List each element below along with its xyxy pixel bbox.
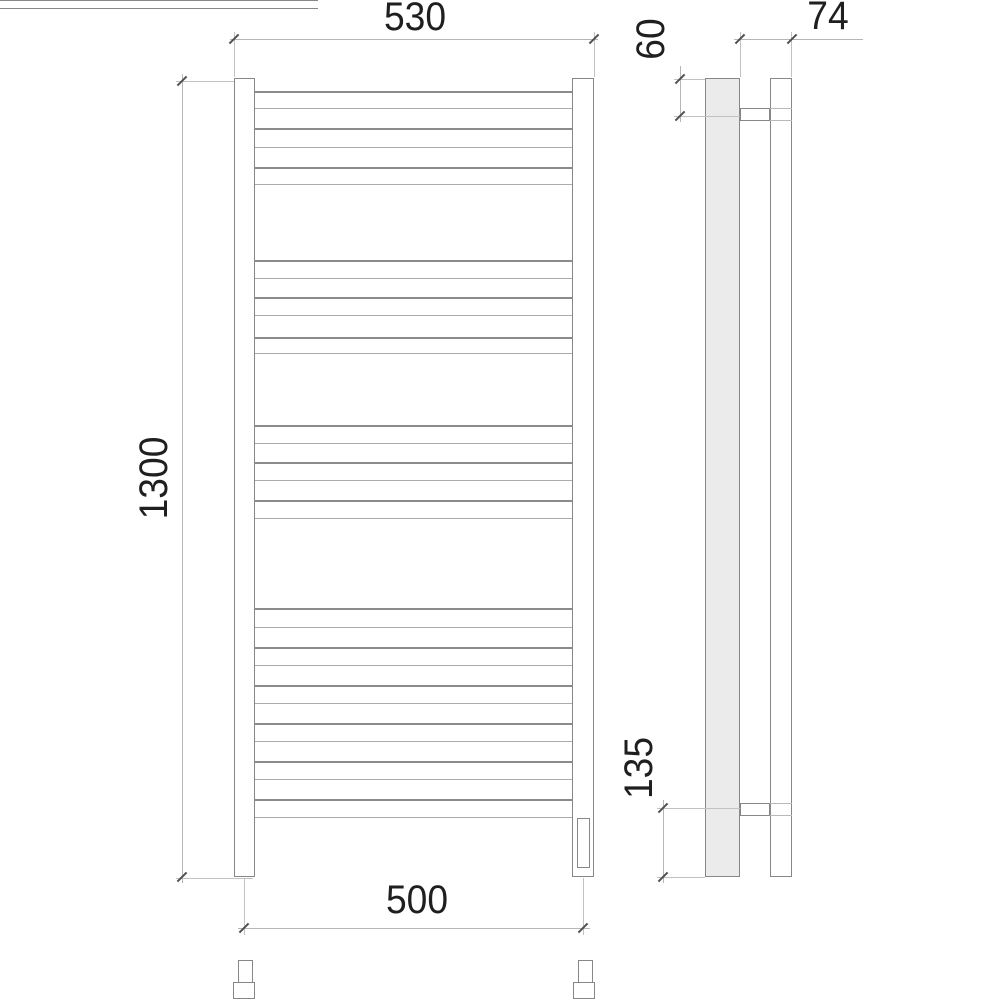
rung-line bbox=[255, 723, 572, 725]
dim-line-1300 bbox=[182, 74, 183, 883]
dim-label-top-width: 530 bbox=[384, 0, 446, 37]
dim-extension-1300-top bbox=[176, 81, 234, 82]
rung-line bbox=[255, 761, 572, 763]
bottom-bracket bbox=[740, 803, 770, 816]
right-post bbox=[572, 78, 594, 877]
right-foot-stem bbox=[578, 960, 593, 983]
rung-line bbox=[255, 315, 572, 316]
rung-line bbox=[255, 425, 572, 427]
rung-line bbox=[255, 518, 572, 519]
rung-line bbox=[255, 462, 572, 464]
rung-line bbox=[255, 608, 572, 610]
left-foot-stem bbox=[238, 960, 253, 983]
drawing-sheet: 530 1300 500 74 bbox=[0, 0, 1000, 1000]
rung-line bbox=[255, 500, 572, 502]
left-foot-plate bbox=[233, 982, 255, 999]
rung-line bbox=[255, 91, 572, 93]
rung-line bbox=[255, 627, 572, 628]
rung-line bbox=[255, 128, 572, 130]
rung-line bbox=[255, 337, 572, 339]
dim-line-530 bbox=[230, 39, 598, 40]
rung-line bbox=[255, 779, 572, 780]
rung-line bbox=[255, 297, 572, 299]
rung-line bbox=[255, 167, 572, 169]
rung-line bbox=[255, 147, 572, 148]
rung-line bbox=[255, 184, 572, 185]
heating-element-box bbox=[577, 818, 590, 868]
bottom-bracket-lines bbox=[770, 803, 792, 816]
wall-strip bbox=[770, 78, 792, 877]
dim-extension-1300-bottom bbox=[176, 878, 253, 879]
rung-line bbox=[255, 685, 572, 687]
dim-label-height: 1300 bbox=[134, 437, 174, 520]
rung-line bbox=[255, 443, 572, 444]
left-post bbox=[234, 78, 255, 877]
rung-line bbox=[255, 817, 572, 818]
dim-label-depth: 74 bbox=[807, 0, 848, 36]
dim-line-500 bbox=[238, 928, 590, 929]
bottom-view bbox=[0, 0, 1000, 9]
dim-line-74 bbox=[734, 39, 863, 40]
rung-line bbox=[255, 108, 572, 109]
rung-line bbox=[255, 647, 572, 649]
rung-line bbox=[255, 703, 572, 704]
dim-line-135 bbox=[663, 800, 664, 883]
rung-line bbox=[255, 353, 572, 354]
rung-line bbox=[255, 260, 572, 262]
dim-label-bottom-width: 500 bbox=[386, 880, 448, 920]
crossbar-profile bbox=[0, 0, 318, 9]
rung-line bbox=[255, 799, 572, 801]
top-bracket-lines bbox=[770, 108, 792, 121]
right-foot-plate bbox=[573, 982, 595, 999]
top-bracket bbox=[740, 108, 770, 121]
rung-line bbox=[255, 665, 572, 666]
dim-label-bottom-offset: 135 bbox=[619, 737, 659, 799]
rung-line bbox=[255, 278, 572, 279]
post-profile-bar bbox=[705, 78, 740, 877]
dim-label-top-offset: 60 bbox=[631, 18, 671, 59]
rung-line bbox=[255, 480, 572, 481]
rung-line bbox=[255, 741, 572, 742]
